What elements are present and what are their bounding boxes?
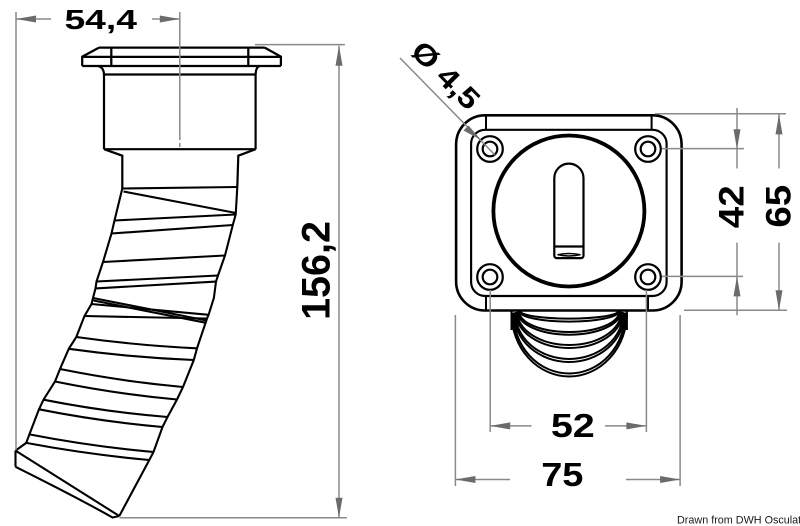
svg-text:Drawn from DWH Osculati Srl: Drawn from DWH Osculati Srl xyxy=(677,515,800,526)
svg-text:65: 65 xyxy=(759,185,798,228)
svg-text:52: 52 xyxy=(551,407,595,444)
svg-text:42: 42 xyxy=(712,185,751,228)
svg-text:54,4: 54,4 xyxy=(64,3,137,34)
svg-text:75: 75 xyxy=(541,456,583,493)
svg-text:156,2: 156,2 xyxy=(295,221,339,320)
